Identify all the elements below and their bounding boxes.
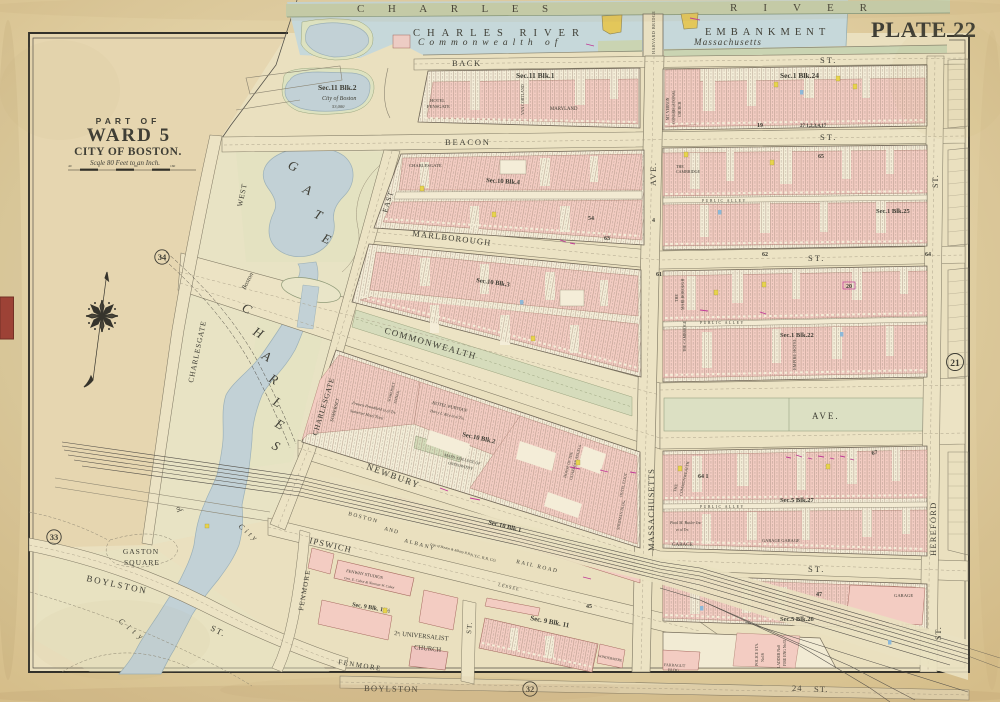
- svg-text:MASSACHUSETTS: MASSACHUSETTS: [646, 468, 656, 551]
- svg-text:POLICE STA.: POLICE STA.: [754, 643, 759, 666]
- svg-text:64 1: 64 1: [698, 474, 709, 480]
- svg-text:ST.: ST.: [808, 253, 825, 263]
- svg-text:Sec.11 Blk.1: Sec.11 Blk.1: [516, 71, 555, 80]
- svg-text:Commonwealth of: Commonwealth of: [418, 37, 562, 48]
- svg-text:RIVER: RIVER: [730, 2, 893, 14]
- svg-text:MARYLAND: MARYLAND: [550, 107, 578, 112]
- svg-text:62: 62: [762, 252, 768, 258]
- svg-text:63: 63: [604, 236, 610, 242]
- svg-text:PUBLIC ALLEY: PUBLIC ALLEY: [700, 505, 745, 509]
- svg-text:AVE.: AVE.: [648, 162, 658, 187]
- svg-text:ST.: ST.: [934, 626, 943, 640]
- svg-text:GARAGE: GARAGE: [672, 543, 693, 548]
- svg-text:Sec.5 Blk.26: Sec.5 Blk.26: [780, 616, 815, 623]
- svg-text:80: 80: [134, 164, 138, 168]
- svg-text:GASTON: GASTON: [123, 547, 159, 556]
- svg-text:HARVARD BRIDGE: HARVARD BRIDGE: [651, 11, 656, 54]
- svg-text:et al Trs: et al Trs: [676, 528, 689, 532]
- svg-text:CHURCH: CHURCH: [678, 101, 682, 117]
- svg-text:ST.: ST.: [820, 132, 837, 142]
- svg-text:PUBLIC ALLEY: PUBLIC ALLEY: [702, 199, 747, 203]
- svg-text:34: 34: [158, 252, 167, 262]
- svg-text:GARAGE: GARAGE: [894, 593, 913, 598]
- svg-text:BLDG.: BLDG.: [668, 667, 680, 673]
- svg-text:MARLBOROUGH: MARLBOROUGH: [680, 279, 685, 310]
- svg-text:ST.: ST.: [820, 55, 837, 65]
- svg-text:THE CAMBRIDGE: THE CAMBRIDGE: [683, 320, 687, 352]
- svg-text:0: 0: [98, 164, 100, 168]
- svg-text:SQUARE: SQUARE: [124, 558, 160, 567]
- svg-text:Sec.11 Blk.2: Sec.11 Blk.2: [318, 83, 357, 92]
- svg-text:HEREFORD: HEREFORD: [928, 502, 938, 556]
- svg-text:ST.: ST.: [814, 684, 828, 694]
- svg-text:21: 21: [950, 359, 960, 369]
- svg-text:Sec.1 Blk.25: Sec.1 Blk.25: [876, 208, 911, 215]
- svg-text:ST.: ST.: [931, 174, 940, 188]
- svg-text:45: 45: [586, 604, 592, 610]
- svg-text:WARD 5: WARD 5: [87, 125, 171, 146]
- svg-text:PLATE 22: PLATE 22: [871, 17, 976, 42]
- svg-text:Sec.5 Blk.27: Sec.5 Blk.27: [780, 497, 815, 504]
- svg-text:BACK: BACK: [452, 58, 482, 68]
- svg-text:FENSGATE: FENSGATE: [427, 104, 450, 109]
- svg-text:Paul M. Butler Inc: Paul M. Butler Inc: [669, 520, 702, 525]
- svg-text:54: 54: [588, 216, 594, 222]
- svg-text:160: 160: [170, 164, 176, 168]
- svg-text:BEACON: BEACON: [445, 137, 491, 147]
- svg-text:4: 4: [652, 218, 655, 224]
- svg-text:HOTEL: HOTEL: [430, 98, 445, 103]
- svg-text:27 1,2,3,4,17: 27 1,2,3,4,17: [800, 124, 827, 129]
- svg-text:65: 65: [818, 154, 824, 160]
- svg-text:Sec.1 Blk.24: Sec.1 Blk.24: [780, 71, 819, 80]
- svg-text:67: 67: [871, 450, 878, 457]
- svg-text:No16: No16: [760, 653, 765, 662]
- svg-text:CAMBRIDGE: CAMBRIDGE: [676, 169, 701, 174]
- svg-text:61: 61: [656, 272, 662, 278]
- svg-text:Massachusetts: Massachusetts: [693, 37, 762, 47]
- svg-text:47: 47: [816, 592, 822, 598]
- svg-text:CHARLESGATE: CHARLESGATE: [409, 163, 442, 168]
- svg-text:24: 24: [792, 683, 803, 693]
- svg-text:AVE.: AVE.: [812, 411, 840, 421]
- svg-text:BOYLSTON: BOYLSTON: [364, 683, 419, 694]
- svg-text:THE: THE: [674, 294, 679, 302]
- svg-text:CONGREGATIONAL: CONGREGATIONAL: [672, 89, 676, 124]
- svg-text:City of Boston: City of Boston: [322, 95, 356, 102]
- svg-text:MT. VERNON: MT. VERNON: [666, 97, 670, 120]
- svg-text:19: 19: [757, 123, 763, 129]
- svg-text:FIRE ENG No33: FIRE ENG No33: [783, 640, 787, 666]
- svg-text:EMPIRE HOTEL: EMPIRE HOTEL: [792, 338, 797, 370]
- svg-text:ST.: ST.: [808, 564, 825, 574]
- svg-text:ST.: ST.: [465, 621, 474, 634]
- svg-text:VAN CORTLAND: VAN CORTLAND: [520, 84, 525, 115]
- svg-text:40: 40: [68, 164, 72, 168]
- svg-text:CHARLES: CHARLES: [357, 3, 572, 15]
- svg-text:64: 64: [925, 252, 931, 258]
- svg-text:GARAGE GARAGE: GARAGE GARAGE: [762, 538, 800, 543]
- svg-text:CITY OF BOSTON.: CITY OF BOSTON.: [74, 146, 182, 158]
- svg-text:LADDER No8: LADDER No8: [777, 645, 781, 668]
- svg-text:32: 32: [526, 684, 535, 694]
- svg-text:Sec.1 Blk.22: Sec.1 Blk.22: [780, 332, 814, 339]
- svg-text:PUBLIC ALLEY: PUBLIC ALLEY: [700, 321, 745, 325]
- svg-text:Scale 80 Feet to an Inch.: Scale 80 Feet to an Inch.: [90, 159, 160, 167]
- svg-text:33: 33: [50, 532, 59, 542]
